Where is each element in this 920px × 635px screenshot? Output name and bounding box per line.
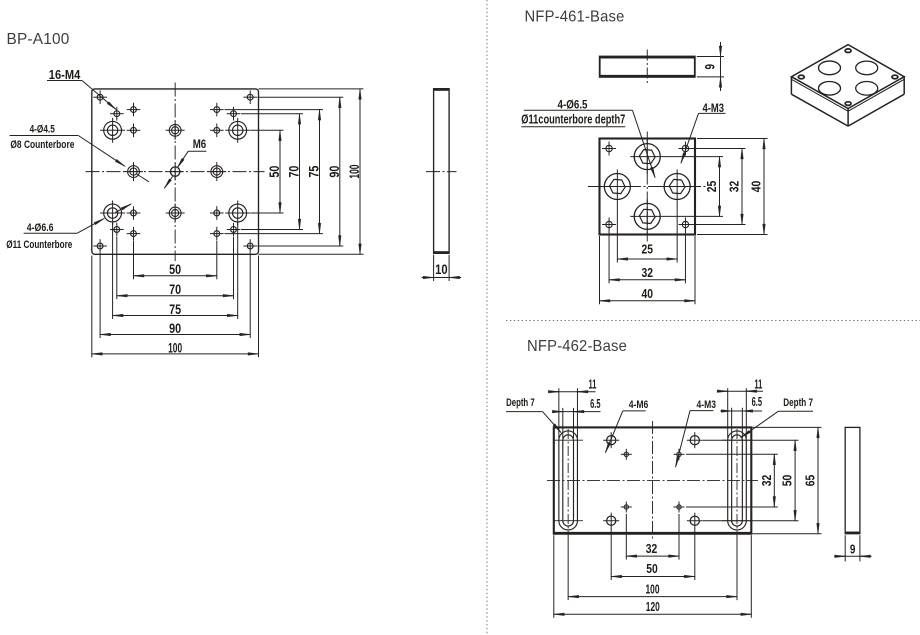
svg-text:32: 32	[727, 181, 742, 193]
svg-text:65: 65	[802, 475, 817, 487]
svg-text:75: 75	[169, 301, 181, 317]
svg-text:16-M4: 16-M4	[49, 68, 81, 82]
svg-text:90: 90	[169, 320, 181, 336]
svg-text:10: 10	[435, 261, 448, 277]
svg-text:50: 50	[266, 165, 282, 177]
svg-text:6.5: 6.5	[752, 394, 762, 409]
svg-text:BP-A100: BP-A100	[7, 31, 70, 48]
svg-text:50: 50	[780, 475, 795, 487]
svg-text:11: 11	[754, 376, 762, 391]
svg-text:Ø11 Counterbore: Ø11 Counterbore	[6, 239, 72, 251]
svg-text:100: 100	[346, 164, 362, 178]
svg-text:Ø8 Counterbore: Ø8 Counterbore	[10, 139, 74, 151]
svg-text:11: 11	[589, 376, 597, 391]
svg-text:50: 50	[646, 561, 658, 576]
svg-text:40: 40	[642, 286, 654, 301]
svg-text:9: 9	[850, 541, 856, 556]
svg-text:4-M3: 4-M3	[697, 399, 717, 411]
svg-text:4-Ø6.6: 4-Ø6.6	[27, 222, 54, 234]
svg-text:75: 75	[306, 165, 322, 177]
svg-text:9: 9	[702, 64, 718, 70]
svg-text:25: 25	[642, 242, 654, 257]
svg-text:32: 32	[759, 475, 774, 487]
svg-text:NFP-461-Base: NFP-461-Base	[525, 9, 625, 26]
svg-text:32: 32	[642, 265, 654, 280]
svg-text:NFP-462-Base: NFP-462-Base	[527, 338, 627, 355]
svg-text:M6: M6	[193, 137, 207, 151]
svg-text:4-Ø4.5: 4-Ø4.5	[30, 124, 55, 136]
svg-text:120: 120	[646, 599, 660, 614]
svg-text:4-M6: 4-M6	[629, 399, 649, 411]
svg-text:40: 40	[749, 181, 764, 193]
svg-text:4-Ø6.5: 4-Ø6.5	[558, 98, 588, 112]
svg-text:32: 32	[646, 541, 658, 556]
svg-text:100: 100	[168, 339, 182, 355]
svg-text:90: 90	[326, 165, 342, 177]
svg-text:6.5: 6.5	[590, 396, 600, 411]
svg-text:Depth 7: Depth 7	[783, 397, 813, 409]
svg-text:Depth 7: Depth 7	[506, 397, 535, 409]
svg-text:100: 100	[646, 581, 660, 596]
svg-text:25: 25	[704, 181, 719, 193]
svg-text:70: 70	[169, 281, 181, 297]
svg-text:50: 50	[169, 261, 181, 277]
svg-text:70: 70	[286, 165, 302, 177]
svg-text:Ø11counterbore depth7: Ø11counterbore depth7	[521, 112, 625, 126]
